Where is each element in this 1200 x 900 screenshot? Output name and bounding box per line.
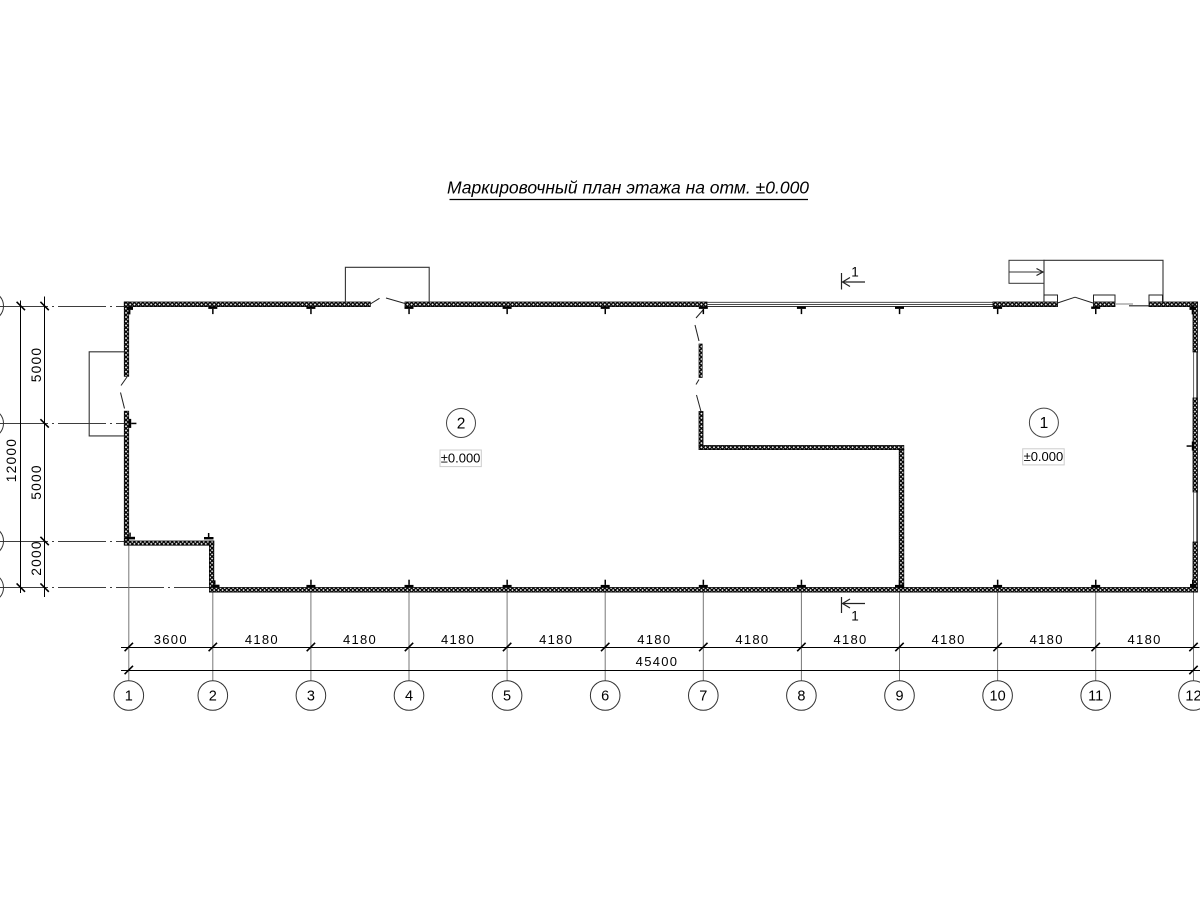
svg-text:1: 1 [851, 609, 859, 624]
svg-text:2: 2 [209, 689, 217, 705]
svg-text:4180: 4180 [343, 632, 377, 647]
svg-text:12: 12 [1185, 689, 1200, 705]
svg-text:4180: 4180 [735, 632, 769, 647]
svg-text:7: 7 [699, 689, 707, 705]
svg-text:4180: 4180 [1128, 632, 1162, 647]
svg-text:5000: 5000 [29, 464, 44, 500]
svg-text:1: 1 [125, 689, 133, 705]
svg-text:±0.000: ±0.000 [1024, 449, 1064, 464]
svg-text:8: 8 [797, 689, 805, 705]
svg-text:4180: 4180 [1030, 632, 1064, 647]
svg-text:4180: 4180 [932, 632, 966, 647]
svg-text:3: 3 [307, 689, 315, 705]
svg-text:10: 10 [990, 689, 1006, 705]
svg-text:12000: 12000 [4, 438, 19, 482]
svg-text:2000: 2000 [29, 540, 44, 576]
svg-text:4180: 4180 [245, 632, 279, 647]
svg-text:45400: 45400 [636, 654, 679, 669]
svg-text:11: 11 [1088, 689, 1103, 705]
svg-text:4: 4 [405, 689, 413, 705]
svg-text:2: 2 [457, 416, 466, 433]
svg-text:Маркировочный план этажа на от: Маркировочный план этажа на отм. ±0.000 [447, 178, 809, 198]
svg-text:4180: 4180 [833, 632, 867, 647]
svg-text:5000: 5000 [29, 347, 44, 383]
svg-text:1: 1 [1040, 415, 1049, 432]
svg-text:4180: 4180 [441, 632, 475, 647]
svg-text:5: 5 [503, 689, 511, 705]
svg-text:±0.000: ±0.000 [441, 451, 481, 466]
svg-text:6: 6 [601, 689, 609, 705]
svg-text:9: 9 [895, 689, 903, 705]
svg-text:4180: 4180 [539, 632, 573, 647]
svg-text:1: 1 [851, 265, 859, 280]
svg-text:3600: 3600 [154, 632, 188, 647]
svg-text:4180: 4180 [637, 632, 671, 647]
